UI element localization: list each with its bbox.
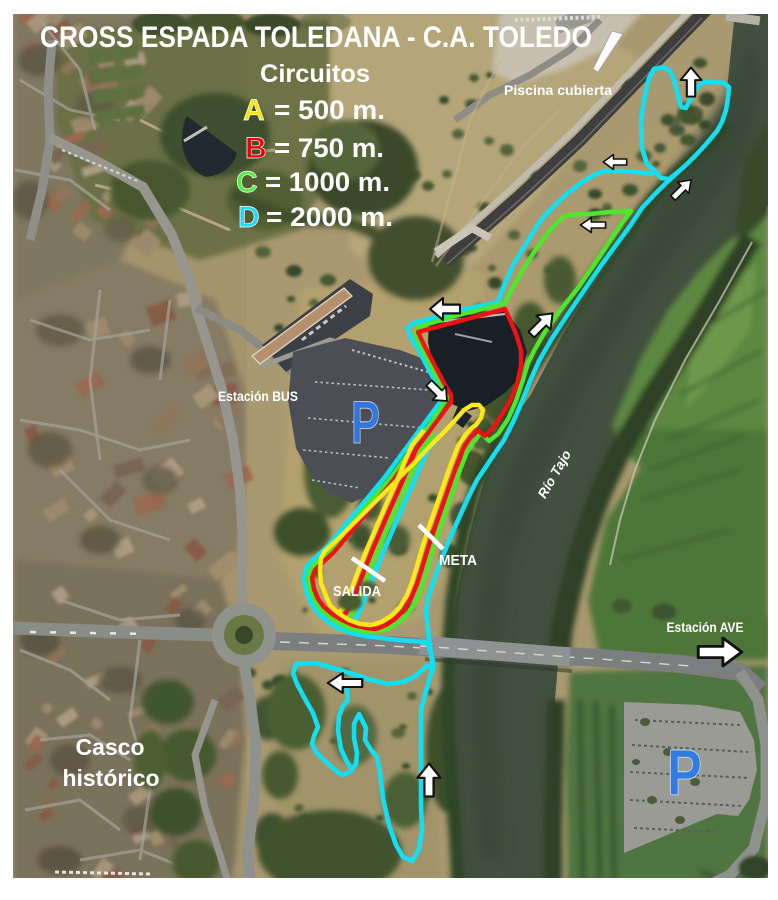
svg-text:Circuitos: Circuitos [260, 60, 370, 88]
svg-text:SALIDA: SALIDA [333, 583, 381, 600]
svg-text:= 500 m.: = 500 m. [274, 95, 385, 125]
svg-text:P: P [667, 736, 702, 809]
svg-text:META: META [439, 552, 477, 569]
svg-text:Casco: Casco [75, 734, 144, 760]
svg-text:A: A [243, 94, 265, 127]
svg-text:CROSS ESPADA TOLEDANA - C.A. T: CROSS ESPADA TOLEDANA - C.A. TOLEDO [40, 21, 592, 54]
svg-text:= 2000 m.: = 2000 m. [266, 202, 393, 232]
svg-text:= 1000 m.: = 1000 m. [265, 167, 390, 197]
svg-text:C: C [236, 166, 258, 199]
svg-text:P: P [351, 389, 380, 456]
svg-text:D: D [238, 201, 260, 234]
svg-text:histórico: histórico [62, 765, 159, 791]
svg-text:Estación BUS: Estación BUS [218, 388, 298, 404]
svg-text:= 750 m.: = 750 m. [274, 133, 384, 163]
svg-text:B: B [245, 132, 267, 165]
svg-text:Piscina cubierta: Piscina cubierta [504, 82, 612, 98]
svg-text:Estación AVE: Estación AVE [667, 619, 744, 635]
